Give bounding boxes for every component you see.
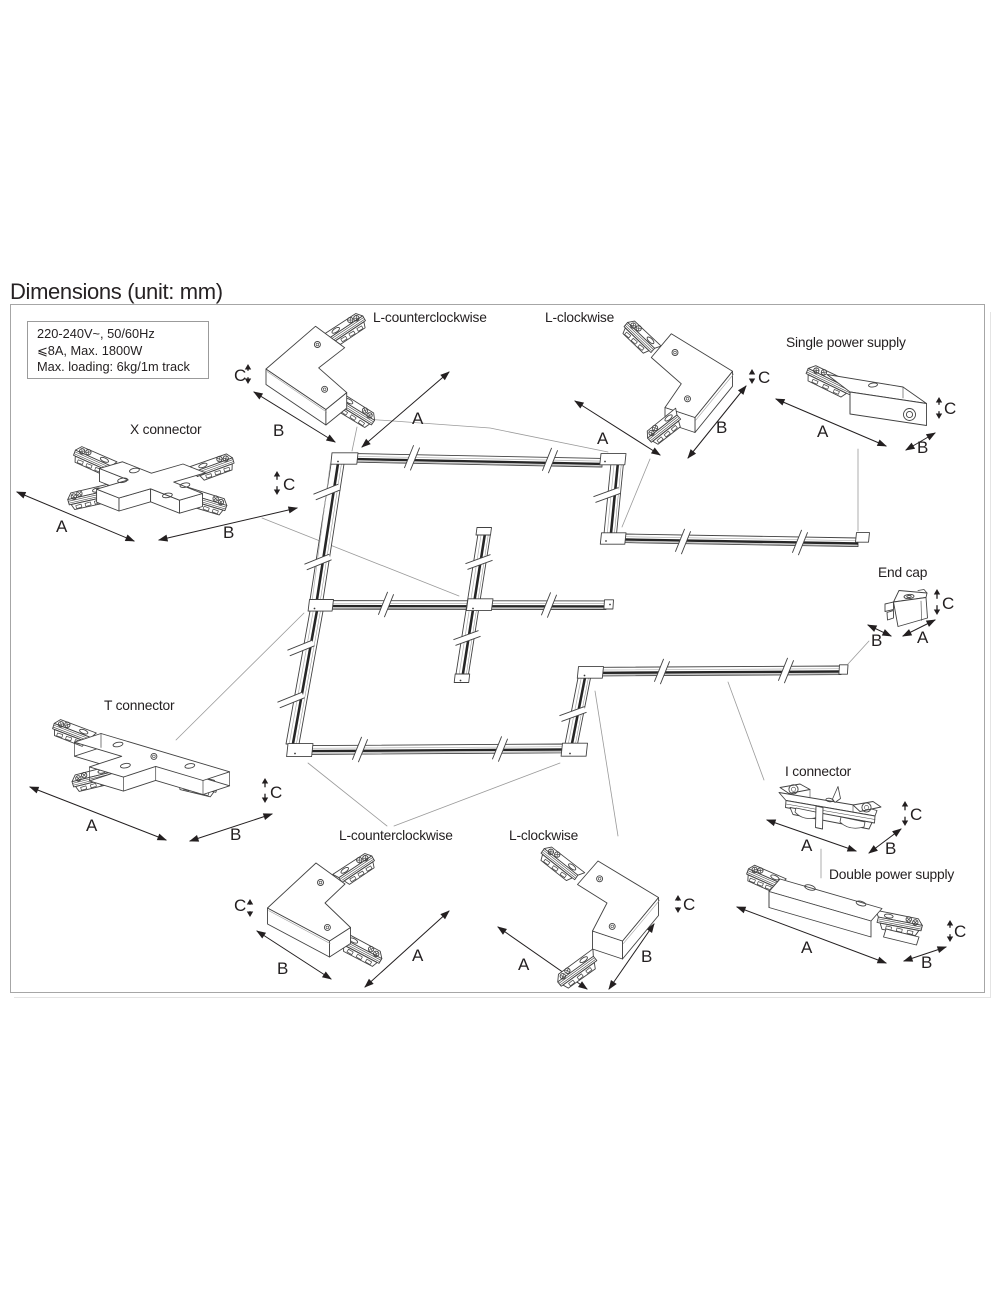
svg-text:C: C [270, 783, 282, 802]
svg-text:C: C [683, 895, 695, 914]
svg-text:C: C [910, 805, 922, 824]
svg-text:A: A [56, 517, 68, 536]
svg-text:C: C [234, 366, 246, 385]
svg-text:C: C [954, 922, 966, 941]
svg-text:B: B [716, 418, 727, 437]
svg-text:B: B [223, 523, 234, 542]
svg-text:C: C [234, 896, 246, 915]
svg-text:B: B [277, 959, 288, 978]
svg-text:B: B [921, 953, 932, 972]
svg-text:B: B [273, 421, 284, 440]
svg-text:A: A [518, 955, 530, 974]
svg-text:A: A [86, 816, 98, 835]
svg-text:A: A [597, 429, 609, 448]
svg-text:A: A [817, 422, 829, 441]
svg-text:B: B [641, 947, 652, 966]
svg-text:A: A [801, 836, 813, 855]
svg-text:B: B [871, 631, 882, 650]
svg-text:A: A [412, 409, 424, 428]
svg-text:C: C [758, 368, 770, 387]
svg-text:A: A [801, 938, 813, 957]
svg-text:B: B [917, 438, 928, 457]
svg-text:C: C [283, 475, 295, 494]
svg-text:C: C [942, 594, 954, 613]
svg-text:A: A [412, 946, 424, 965]
svg-text:A: A [917, 628, 929, 647]
svg-text:B: B [885, 839, 896, 858]
svg-text:C: C [944, 399, 956, 418]
svg-text:B: B [230, 825, 241, 844]
